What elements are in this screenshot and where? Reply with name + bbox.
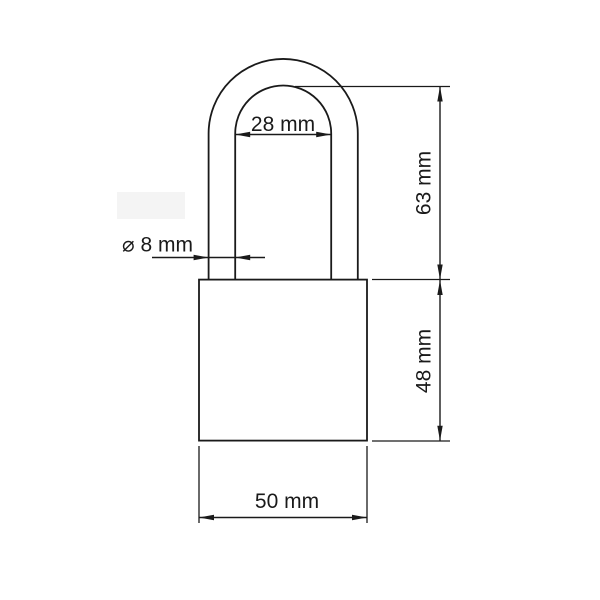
dim-shackle-inner-width: 28 mm xyxy=(235,113,331,137)
dim-shackle-height: 63 mm xyxy=(295,87,450,280)
dim-body-height: 48 mm xyxy=(372,280,450,441)
shackle-outer-outline xyxy=(209,59,358,281)
arrowhead-right xyxy=(316,132,331,137)
dimension-label: 48 mm xyxy=(413,329,436,393)
arrowhead-down xyxy=(437,426,442,441)
arrowhead-left-pointing xyxy=(235,255,250,260)
arrowhead-up xyxy=(437,280,442,295)
dimension-label: 28 mm xyxy=(251,113,315,136)
background-artifact xyxy=(117,192,185,219)
arrowhead-left xyxy=(235,132,250,137)
arrowhead-right-pointing xyxy=(194,255,209,260)
dim-shackle-diameter: ⌀ 8 mm xyxy=(122,234,265,261)
drawing-canvas: 28 mm ⌀ 8 mm 63 mm 48 mm xyxy=(0,0,600,600)
arrowhead-down xyxy=(437,265,442,280)
padlock-technical-drawing: 28 mm ⌀ 8 mm 63 mm 48 mm xyxy=(0,0,600,600)
dimension-label: ⌀ 8 mm xyxy=(122,234,193,257)
arrowhead-left xyxy=(199,515,214,520)
padlock-body xyxy=(199,280,367,441)
arrowhead-up xyxy=(437,87,442,102)
dim-body-width: 50 mm xyxy=(199,446,367,523)
dimension-label: 63 mm xyxy=(413,151,436,215)
dimension-label: 50 mm xyxy=(255,490,319,513)
arrowhead-right xyxy=(352,515,367,520)
